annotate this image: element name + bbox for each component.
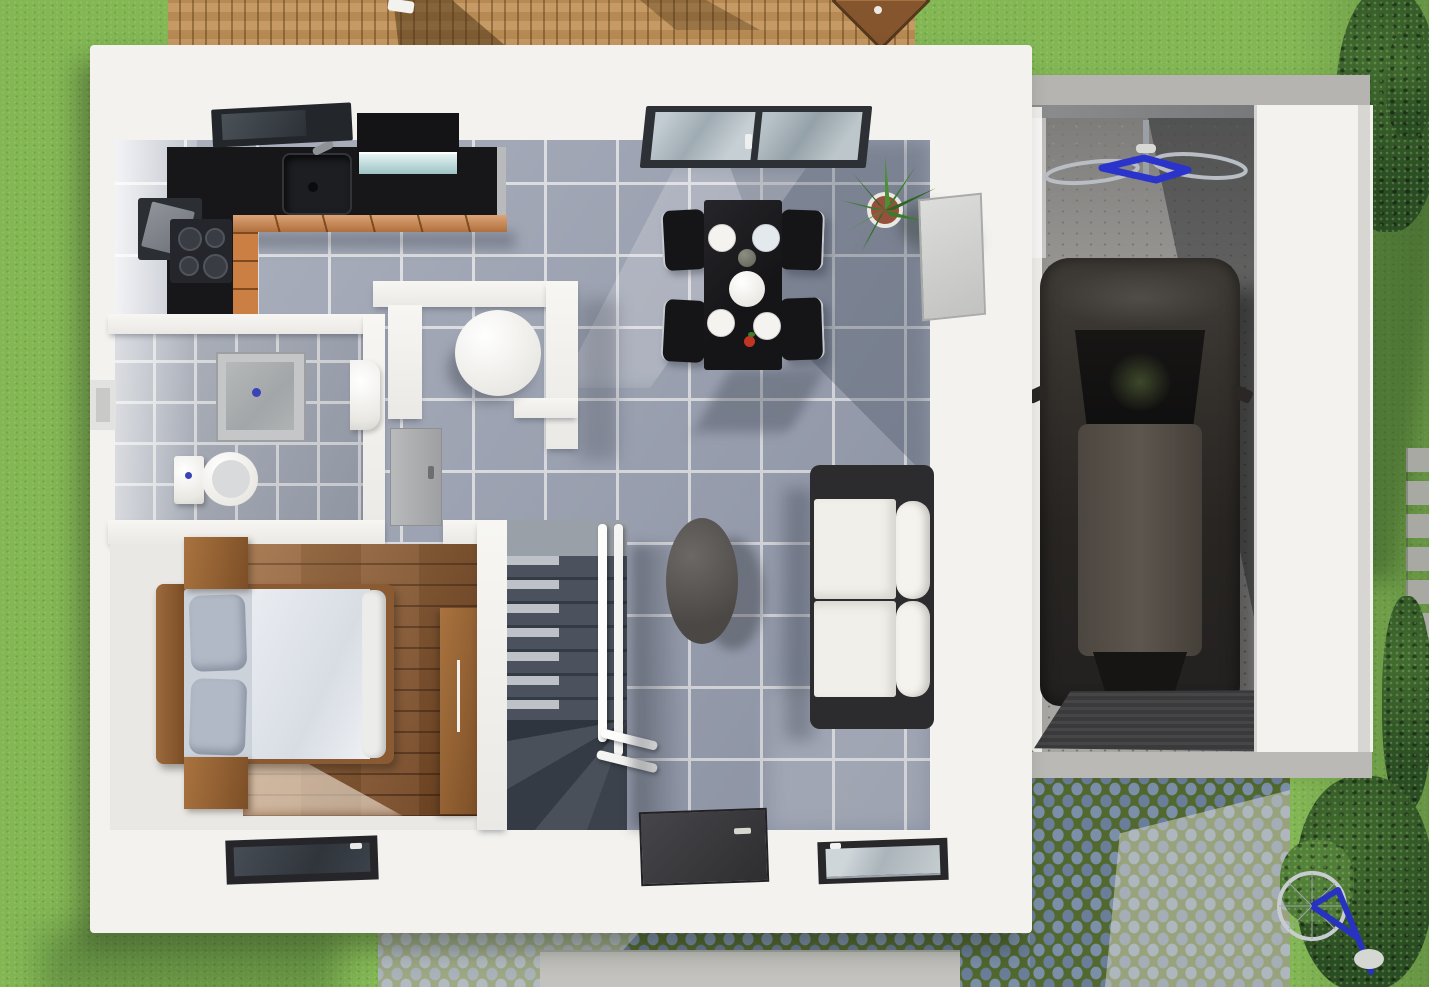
dining-chair-3 — [779, 209, 825, 270]
leaning-bicycle — [1272, 864, 1412, 987]
concrete-apron — [1032, 752, 1372, 778]
plate-1 — [708, 224, 736, 252]
sofa-back-cushion-1 — [896, 501, 930, 599]
plate-4 — [753, 312, 781, 340]
bedroom-window-handle — [350, 843, 362, 849]
garage-east-wall — [1254, 105, 1373, 752]
handrail-inner — [614, 524, 623, 756]
car-roof — [1078, 424, 1202, 656]
garage-east-wall-outer-edge — [1358, 105, 1370, 752]
hanging-bicycle-seat — [1136, 144, 1156, 153]
washbasin — [350, 360, 380, 430]
kitchen-tilt-window-glass — [221, 110, 306, 140]
car-windshield — [1066, 330, 1214, 426]
plate-2 — [752, 224, 780, 252]
tree-branch-overhang — [1386, 30, 1429, 140]
living-window-handle — [830, 843, 841, 849]
toilet-seat — [212, 460, 250, 498]
bathroom-north-wall — [108, 314, 376, 334]
sofa-back-cushion-2 — [896, 601, 930, 697]
cooktop-burner-1 — [178, 227, 202, 251]
patio-door-pane-right — [757, 112, 862, 160]
vase — [738, 249, 756, 267]
hallway-open-door — [390, 428, 442, 526]
floor-plan-render — [0, 0, 1429, 987]
niche-return-wall — [514, 398, 578, 418]
niche-left-wall — [388, 305, 422, 419]
bathroom-west-window-glass — [96, 388, 110, 422]
parasol-pole-tip — [874, 6, 882, 14]
cobblestone-driveway — [1030, 778, 1290, 987]
concrete-pad — [540, 950, 960, 987]
sofa-seat-cushion-1 — [814, 499, 896, 599]
dining-chair-4 — [779, 297, 825, 360]
front-door-handle — [734, 828, 751, 835]
hallway-door-handle — [428, 466, 434, 479]
cooktop-burner-4 — [203, 254, 228, 279]
patio-door-pane-left — [650, 112, 755, 160]
niche-right-wall — [546, 281, 578, 449]
handrail-outer — [598, 524, 607, 742]
nightstand-top — [184, 537, 248, 589]
bed-headboard — [156, 584, 184, 764]
wooden-deck — [168, 0, 915, 48]
stairwell-west-wall — [477, 520, 507, 830]
nightstand-bottom — [184, 757, 248, 809]
cabinet-fronts-top — [233, 215, 507, 232]
hanging-bicycle — [1040, 118, 1255, 210]
shrubs-right-edge — [1382, 596, 1429, 810]
shower-drain — [252, 388, 261, 397]
garage-roof-edge — [1032, 75, 1370, 107]
oval-coffee-table — [666, 518, 738, 644]
winder-stairs — [507, 556, 627, 730]
sofa-seat-cushion-2 — [814, 601, 896, 697]
shower-tray-inner — [226, 362, 294, 430]
cabinet-fronts-left — [233, 232, 258, 316]
bed-pillow-2 — [189, 678, 248, 756]
toilet-tank — [174, 456, 204, 504]
dining-chair-2 — [660, 299, 707, 363]
bed-blanket-roll — [362, 590, 386, 758]
leaning-wall-picture — [918, 193, 986, 322]
cooktop-burner-2 — [205, 228, 225, 248]
living-south-window-glass — [826, 845, 941, 879]
plate-3 — [707, 309, 735, 337]
tomato-leaf — [748, 332, 755, 337]
sink-drain — [308, 182, 318, 192]
bed-pillow-1 — [189, 594, 248, 672]
niche-top-wall — [373, 281, 573, 307]
dining-chair-1 — [660, 209, 707, 271]
tomato-sprig — [744, 336, 755, 347]
stair-landing — [507, 520, 627, 556]
toilet-flush-button — [185, 472, 192, 479]
front-door — [639, 808, 770, 886]
cooktop-burner-3 — [179, 256, 199, 276]
serving-plate — [729, 271, 765, 307]
range-hood-glass — [359, 152, 457, 174]
kitchen-counter-end-cap — [497, 147, 506, 215]
wardrobe-handle — [457, 660, 460, 732]
bed-blanket — [252, 589, 370, 759]
round-white-table — [455, 310, 541, 396]
patio-door-handle — [745, 134, 752, 149]
bicycle-seat — [1354, 949, 1384, 969]
